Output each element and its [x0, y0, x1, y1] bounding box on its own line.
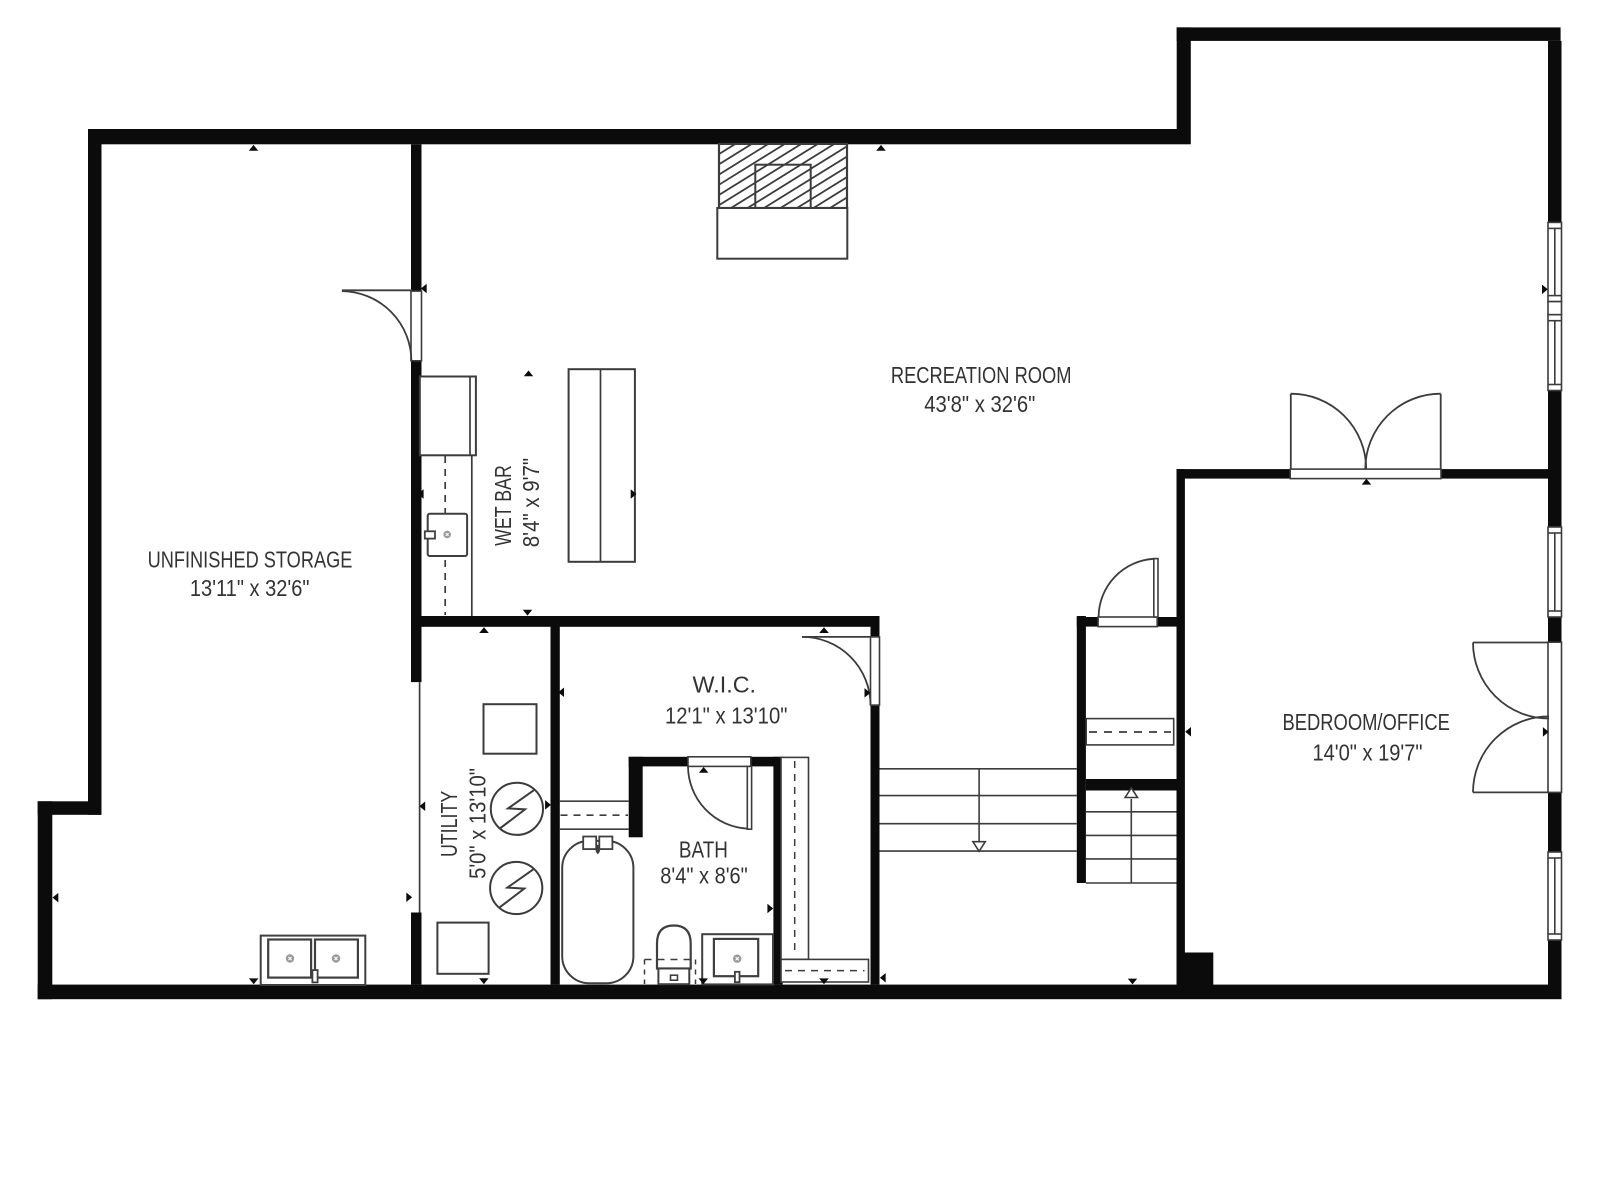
svg-text:12'1" x 13'10": 12'1" x 13'10": [665, 703, 788, 729]
svg-text:UTILITY: UTILITY: [436, 790, 462, 857]
svg-text:RECREATION ROOM: RECREATION ROOM: [891, 362, 1072, 388]
svg-text:43'8" x 32'6": 43'8" x 32'6": [924, 391, 1035, 417]
svg-text:UNFINISHED STORAGE: UNFINISHED STORAGE: [148, 547, 353, 573]
svg-text:WET BAR: WET BAR: [490, 465, 516, 546]
svg-text:W.I.C.: W.I.C.: [693, 672, 757, 698]
svg-text:BATH: BATH: [679, 837, 728, 863]
svg-text:5'0" x 13'10": 5'0" x 13'10": [465, 768, 491, 879]
svg-text:8'4" x 9'7": 8'4" x 9'7": [518, 458, 544, 547]
svg-text:8'4" x 8'6": 8'4" x 8'6": [660, 863, 748, 889]
svg-text:BEDROOM/OFFICE: BEDROOM/OFFICE: [1282, 709, 1450, 735]
svg-text:13'11" x 32'6": 13'11" x 32'6": [190, 575, 310, 601]
svg-text:14'0" x 19'7": 14'0" x 19'7": [1313, 740, 1423, 766]
